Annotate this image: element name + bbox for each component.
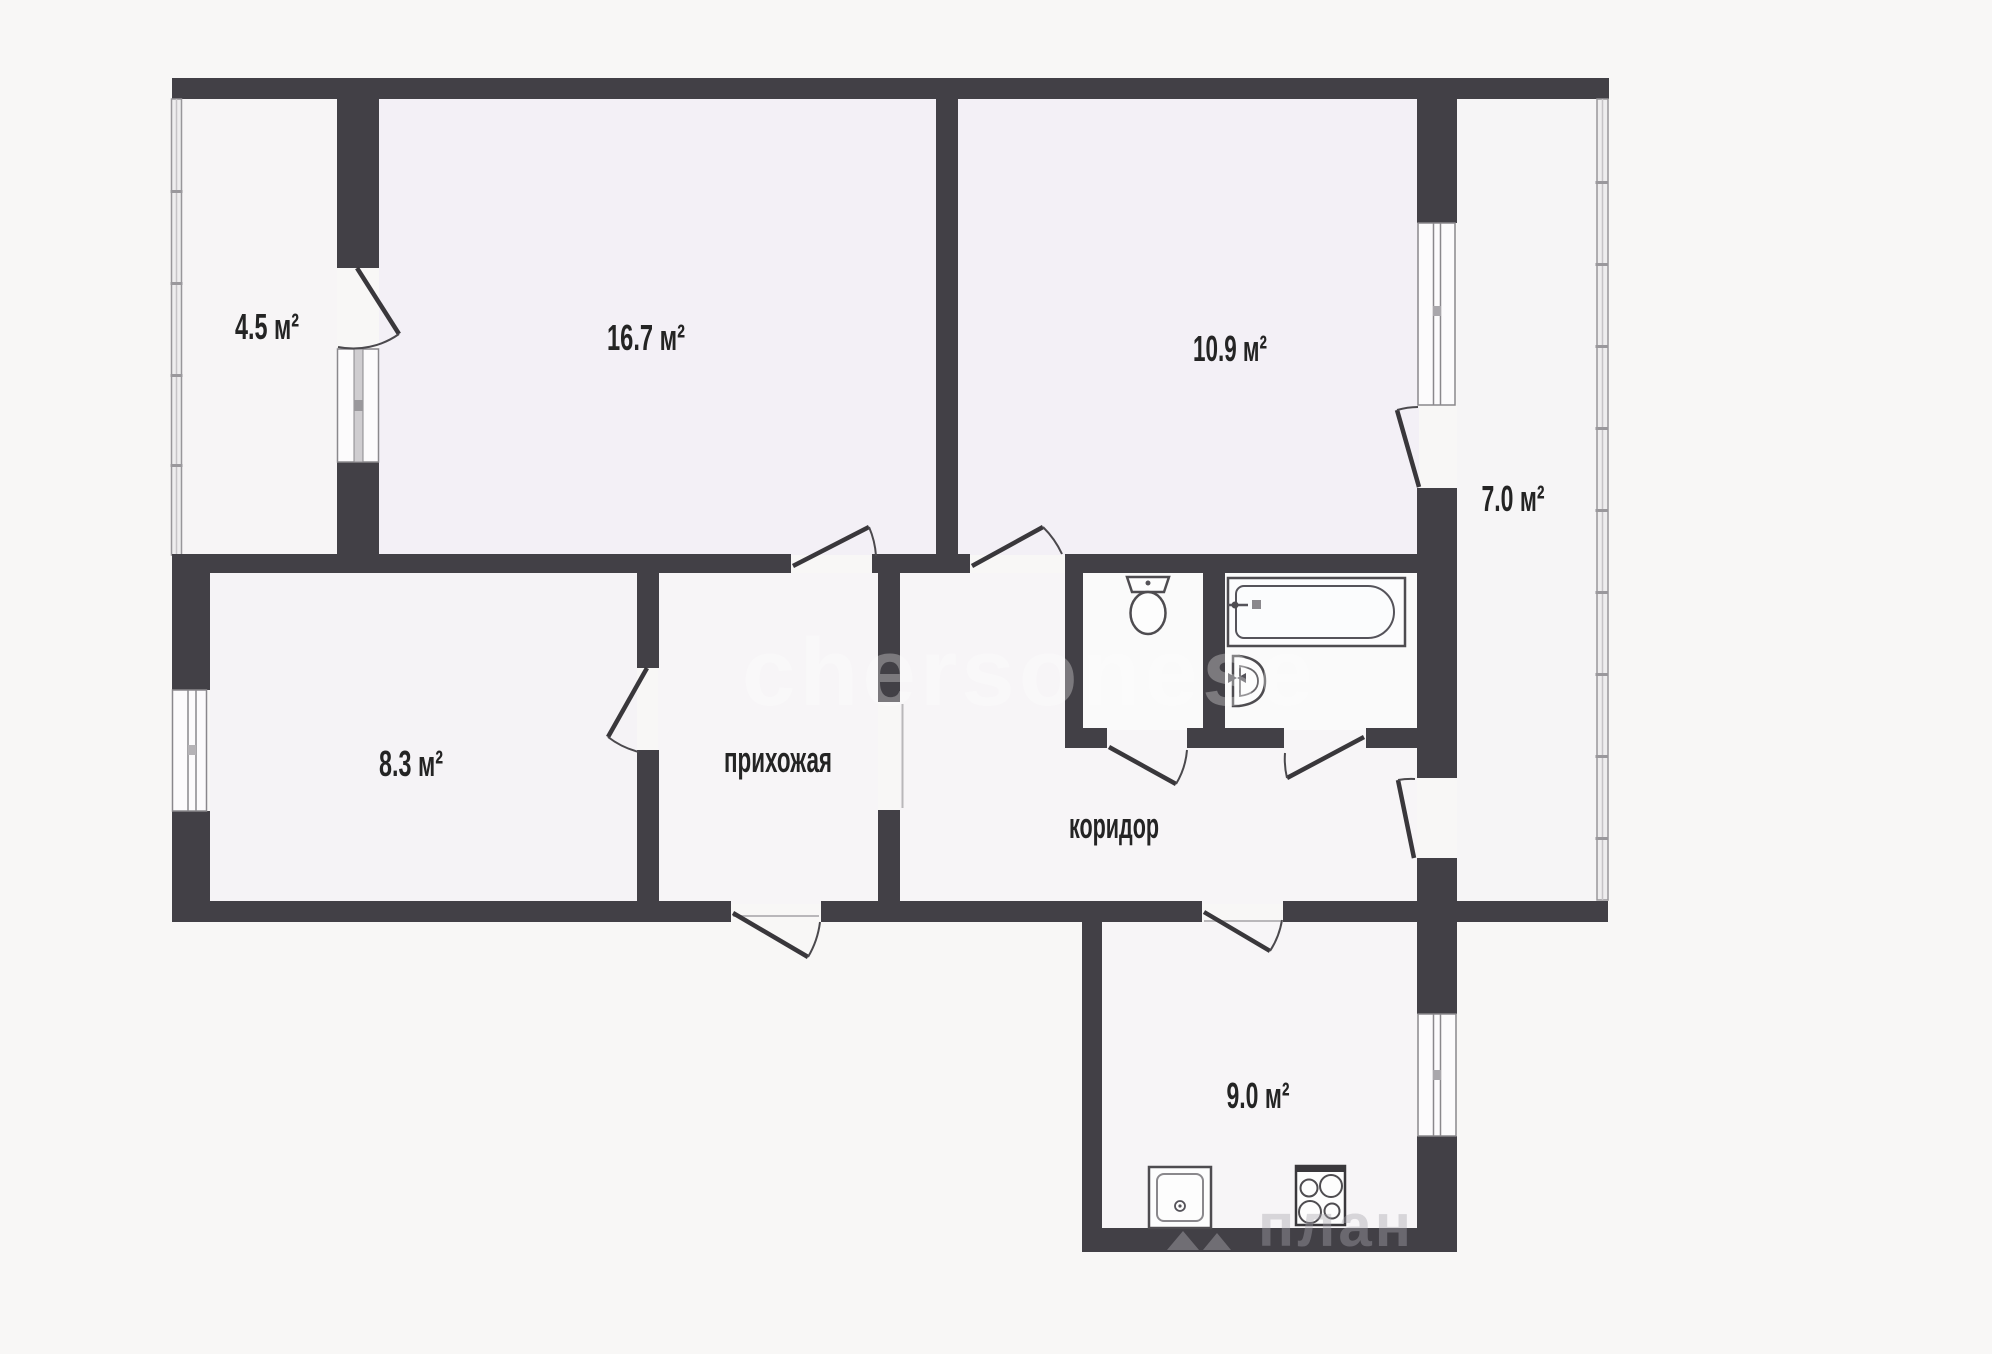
svg-text:chersonese: chersonese xyxy=(742,619,1313,726)
svg-text:9.0 м²: 9.0 м² xyxy=(1227,1075,1290,1116)
svg-text:прихожая: прихожая xyxy=(724,739,832,780)
svg-text:план: план xyxy=(1258,1192,1414,1259)
svg-text:коридор: коридор xyxy=(1069,805,1159,846)
svg-text:16.7 м²: 16.7 м² xyxy=(607,317,685,358)
svg-text:7.0 м²: 7.0 м² xyxy=(1482,478,1545,519)
svg-text:4.5 м²: 4.5 м² xyxy=(235,306,299,347)
svg-text:8.3 м²: 8.3 м² xyxy=(379,743,443,784)
svg-text:10.9 м²: 10.9 м² xyxy=(1193,328,1267,369)
